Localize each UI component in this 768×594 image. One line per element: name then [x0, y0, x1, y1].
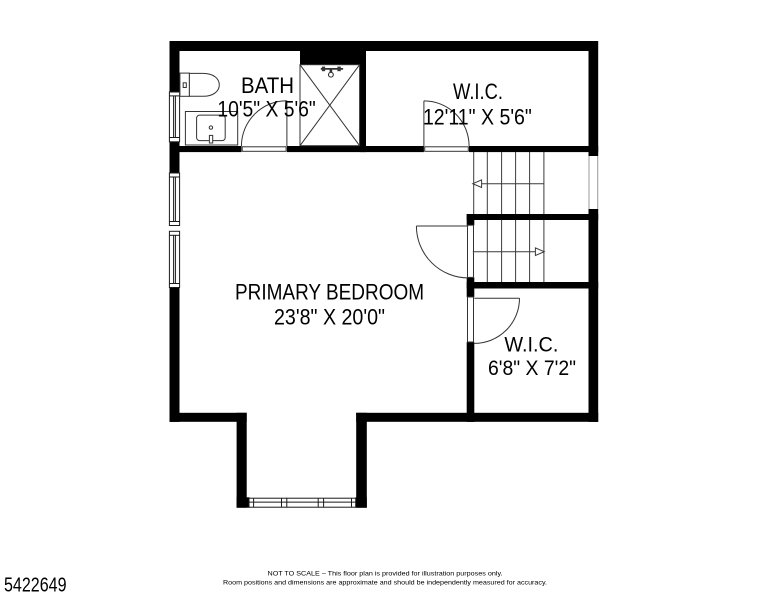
svg-text:12'11" X 5'6": 12'11" X 5'6"	[423, 105, 532, 130]
svg-text:BATH: BATH	[241, 73, 294, 98]
svg-text:W.I.C.: W.I.C.	[453, 79, 503, 104]
svg-text:6'8" X 7'2": 6'8" X 7'2"	[488, 357, 576, 380]
svg-text:PRIMARY BEDROOM: PRIMARY BEDROOM	[235, 280, 424, 305]
svg-text:W.I.C.: W.I.C.	[504, 334, 558, 357]
svg-text:Room positions and dimensions: Room positions and dimensions are approx…	[223, 579, 547, 586]
svg-text:23'8" X 20'0": 23'8" X 20'0"	[274, 305, 385, 330]
svg-text:10'5" X 5'6": 10'5" X 5'6"	[217, 97, 315, 122]
svg-text:NOT TO SCALE – This floor plan: NOT TO SCALE – This floor plan is provid…	[268, 571, 503, 578]
svg-text:5422649: 5422649	[4, 573, 67, 594]
